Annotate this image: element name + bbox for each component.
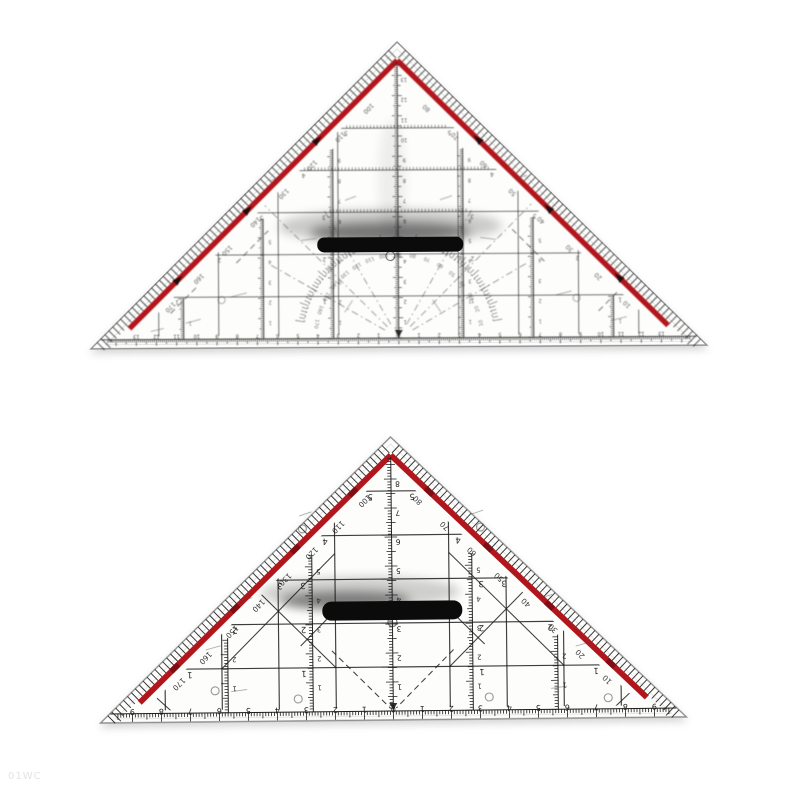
svg-text:6: 6 xyxy=(468,217,471,223)
svg-text:8: 8 xyxy=(403,177,406,183)
svg-text:2: 2 xyxy=(217,256,221,263)
svg-text:1: 1 xyxy=(269,319,272,325)
svg-text:11: 11 xyxy=(401,116,407,122)
svg-text:6: 6 xyxy=(217,706,222,715)
svg-text:1: 1 xyxy=(317,683,322,691)
geometry-set-squares-photo: 1001101201301401501601708070605040302010… xyxy=(0,0,800,800)
svg-text:3: 3 xyxy=(501,578,507,588)
svg-text:3: 3 xyxy=(468,277,471,283)
svg-text:6: 6 xyxy=(338,218,341,224)
svg-text:5: 5 xyxy=(447,129,451,136)
svg-text:8: 8 xyxy=(623,702,628,711)
svg-text:8: 8 xyxy=(468,176,471,182)
svg-text:3: 3 xyxy=(478,704,483,713)
svg-text:2: 2 xyxy=(232,625,238,635)
svg-text:2: 2 xyxy=(575,254,579,261)
svg-text:3: 3 xyxy=(337,332,340,338)
svg-text:1: 1 xyxy=(377,332,380,338)
svg-text:2: 2 xyxy=(477,653,482,661)
svg-text:3: 3 xyxy=(477,624,482,632)
svg-text:1: 1 xyxy=(420,704,425,713)
svg-text:9: 9 xyxy=(468,156,471,162)
svg-text:1: 1 xyxy=(404,318,407,324)
svg-text:2: 2 xyxy=(449,704,454,713)
triangle-top: 1001101201301401501601708070605040302010… xyxy=(89,40,707,350)
handle-bar xyxy=(317,237,463,253)
svg-text:6: 6 xyxy=(565,703,570,712)
svg-text:7: 7 xyxy=(594,702,599,711)
svg-text:2: 2 xyxy=(539,297,542,303)
svg-text:2: 2 xyxy=(397,653,402,662)
svg-text:5: 5 xyxy=(296,332,299,338)
svg-text:4: 4 xyxy=(490,170,494,177)
svg-text:1: 1 xyxy=(339,319,342,325)
svg-text:4: 4 xyxy=(468,257,471,263)
svg-text:4: 4 xyxy=(268,258,271,264)
svg-text:6: 6 xyxy=(403,217,406,223)
svg-text:9: 9 xyxy=(403,157,406,163)
svg-text:3: 3 xyxy=(538,277,541,283)
svg-text:2: 2 xyxy=(562,652,567,660)
svg-text:5: 5 xyxy=(468,237,471,243)
svg-text:5: 5 xyxy=(246,706,251,715)
svg-text:3: 3 xyxy=(322,213,326,220)
svg-text:5: 5 xyxy=(536,703,541,712)
svg-text:4: 4 xyxy=(301,172,305,179)
svg-text:3: 3 xyxy=(458,331,461,337)
svg-text:5: 5 xyxy=(268,238,271,244)
svg-text:8: 8 xyxy=(559,331,562,337)
svg-text:7: 7 xyxy=(256,332,259,338)
svg-text:13: 13 xyxy=(401,76,407,82)
svg-text:1: 1 xyxy=(301,668,307,678)
svg-text:5: 5 xyxy=(367,491,373,501)
svg-text:11: 11 xyxy=(173,333,179,339)
svg-text:2: 2 xyxy=(333,705,338,714)
svg-text:7: 7 xyxy=(395,508,400,517)
svg-text:4: 4 xyxy=(455,534,461,544)
svg-text:4: 4 xyxy=(316,596,321,604)
svg-text:5: 5 xyxy=(396,566,401,575)
svg-text:9: 9 xyxy=(338,157,341,163)
svg-text:9: 9 xyxy=(579,330,582,336)
svg-text:3: 3 xyxy=(268,279,271,285)
svg-text:2: 2 xyxy=(301,624,307,634)
svg-text:11: 11 xyxy=(618,330,624,336)
svg-text:10: 10 xyxy=(401,136,407,142)
svg-text:9: 9 xyxy=(215,333,218,339)
svg-text:6: 6 xyxy=(395,537,400,546)
svg-text:3: 3 xyxy=(396,624,401,633)
svg-text:10: 10 xyxy=(194,333,200,339)
product-photo: 1001101201301401501601708070605040302010… xyxy=(0,0,800,800)
svg-text:2: 2 xyxy=(269,299,272,305)
svg-text:1: 1 xyxy=(593,665,599,675)
svg-text:10: 10 xyxy=(478,319,485,326)
svg-text:9: 9 xyxy=(130,707,135,716)
svg-text:13: 13 xyxy=(133,333,139,339)
svg-text:1: 1 xyxy=(397,682,402,691)
svg-text:4: 4 xyxy=(322,536,328,546)
svg-text:2: 2 xyxy=(322,255,326,262)
svg-text:1: 1 xyxy=(469,318,472,324)
svg-text:5: 5 xyxy=(476,566,481,574)
svg-text:3: 3 xyxy=(304,705,309,714)
handle-bar xyxy=(322,600,462,620)
svg-text:4: 4 xyxy=(478,331,481,337)
svg-text:7: 7 xyxy=(403,197,406,203)
svg-text:8: 8 xyxy=(395,479,400,488)
svg-text:1: 1 xyxy=(175,298,179,305)
svg-text:7: 7 xyxy=(188,707,193,716)
svg-text:8: 8 xyxy=(236,332,239,338)
svg-text:2: 2 xyxy=(404,298,407,304)
svg-text:8: 8 xyxy=(338,177,341,183)
svg-text:4: 4 xyxy=(403,258,406,264)
svg-text:4: 4 xyxy=(476,595,481,603)
svg-text:1: 1 xyxy=(477,682,482,690)
triangle-bottom: 1001101201301401501601708070605040302010… xyxy=(98,434,687,723)
svg-text:7: 7 xyxy=(338,197,341,203)
svg-text:80: 80 xyxy=(409,252,416,259)
svg-text:1: 1 xyxy=(479,666,485,676)
svg-text:5: 5 xyxy=(538,237,541,243)
svg-text:2: 2 xyxy=(438,331,441,337)
svg-text:1: 1 xyxy=(539,317,542,323)
svg-text:10: 10 xyxy=(598,330,604,336)
svg-text:12: 12 xyxy=(401,96,407,102)
svg-text:3: 3 xyxy=(277,580,283,590)
svg-text:1: 1 xyxy=(618,296,622,303)
watermark: 01WC xyxy=(8,771,42,782)
svg-text:5: 5 xyxy=(409,491,415,501)
svg-text:7: 7 xyxy=(468,197,471,203)
svg-text:5: 5 xyxy=(344,129,348,136)
svg-text:1: 1 xyxy=(362,705,367,714)
svg-text:1: 1 xyxy=(562,681,567,689)
svg-text:5: 5 xyxy=(498,331,501,337)
svg-text:2: 2 xyxy=(317,654,322,662)
svg-text:8: 8 xyxy=(159,707,164,716)
svg-text:1: 1 xyxy=(417,331,420,337)
svg-text:9: 9 xyxy=(652,702,657,711)
svg-text:2: 2 xyxy=(357,332,360,338)
svg-text:13: 13 xyxy=(658,330,664,336)
svg-text:2: 2 xyxy=(547,621,553,631)
svg-text:4: 4 xyxy=(316,332,319,338)
svg-text:1: 1 xyxy=(187,669,193,679)
svg-text:7: 7 xyxy=(539,331,542,337)
svg-text:3: 3 xyxy=(403,278,406,284)
